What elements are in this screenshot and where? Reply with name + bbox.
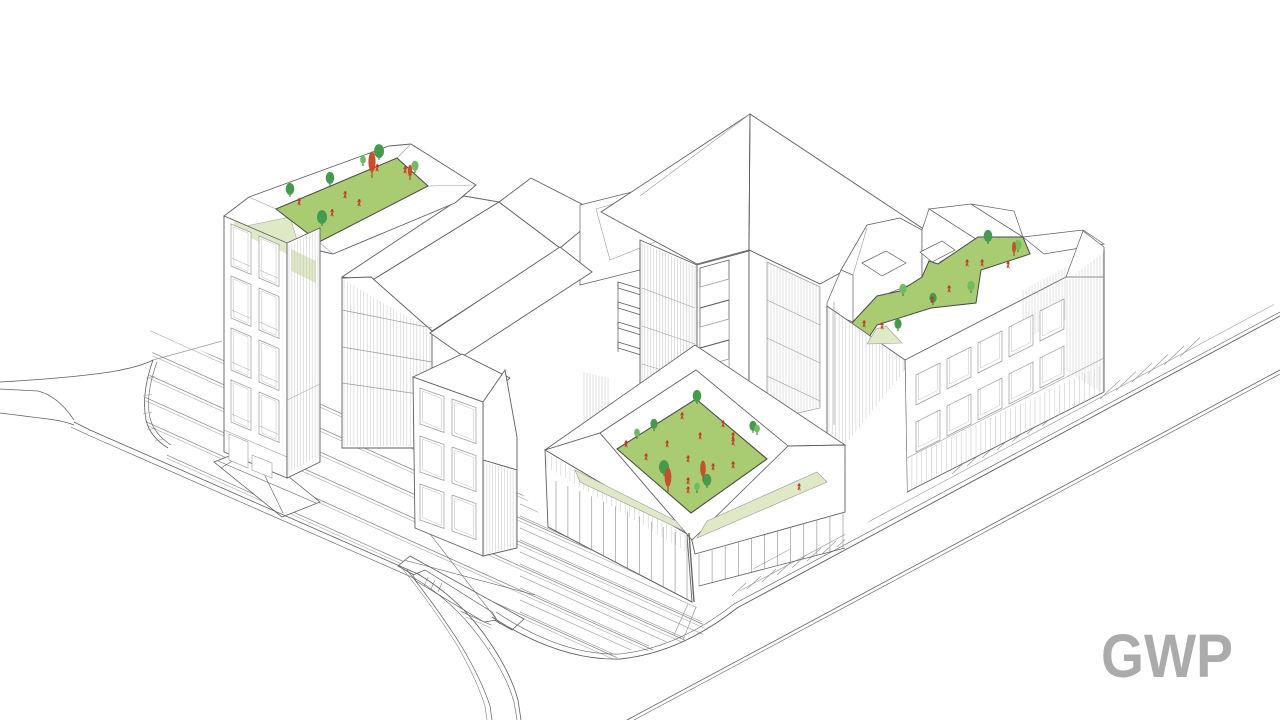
svg-text:GWP: GWP	[1101, 622, 1233, 690]
